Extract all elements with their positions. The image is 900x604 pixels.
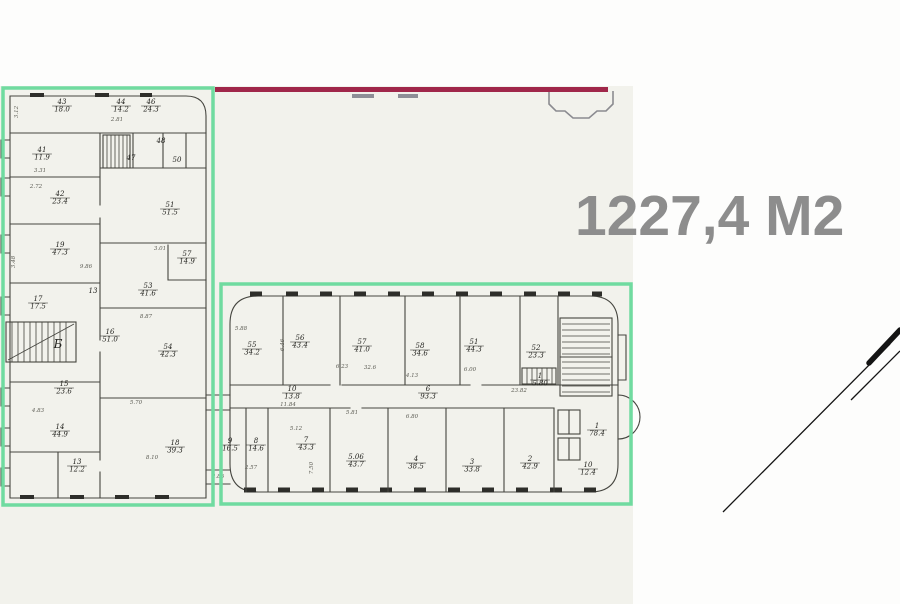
dimension-label: 5.81: [346, 410, 358, 416]
dimension-label: 4.83: [31, 408, 45, 414]
dimension-label: 5.70: [130, 400, 143, 406]
dimension-label: 6.23: [336, 364, 349, 370]
dimension-label: 3.48: [11, 255, 17, 268]
dimension-label: 3.31: [34, 168, 46, 174]
floor-plan-screenshot: 4318.04414.24624.34847504111.94223.45151…: [0, 0, 900, 604]
dimension-label: 6.80: [406, 414, 419, 420]
dimension-label: 23.82: [510, 388, 527, 394]
dimension-label: 32.6: [364, 365, 377, 371]
dimension-label: 4.13: [405, 373, 419, 379]
total-area-label: 1227,4 М2: [575, 183, 900, 249]
room-label: 13: [89, 287, 98, 295]
dimension-label: 8.87: [140, 314, 153, 320]
dimension-label: 9.86: [80, 264, 93, 270]
room-label: 47: [126, 154, 136, 162]
dimension-label: 5.12: [290, 426, 303, 432]
room-label: 48: [156, 137, 166, 145]
dimension-label: 2.57: [244, 465, 258, 471]
red-facade-line: [215, 87, 608, 92]
dimension-label: 2.72: [29, 184, 43, 190]
dimension-label: 11.84: [280, 402, 296, 408]
dimension-label: 6.46: [280, 338, 286, 351]
dimension-label: 2.81: [110, 117, 123, 123]
dimension-label: 6.00: [464, 367, 477, 373]
room-label: 50: [173, 156, 182, 164]
room-label: 5.0643.7: [347, 453, 364, 469]
dimension-label: 3.01: [154, 246, 166, 252]
dimension-label: 3.12: [14, 105, 20, 118]
pen-strokes: [723, 330, 900, 512]
room-label: Б: [53, 337, 63, 351]
dimension-label: 5.88: [235, 326, 248, 332]
dimension-label: 7.50: [309, 461, 315, 474]
dimension-label: 8.10: [146, 455, 159, 461]
facade-tick: [352, 94, 374, 98]
facade-tick: [398, 94, 418, 98]
floor-plan-canvas: 4318.04414.24624.34847504111.94223.45151…: [0, 0, 900, 604]
